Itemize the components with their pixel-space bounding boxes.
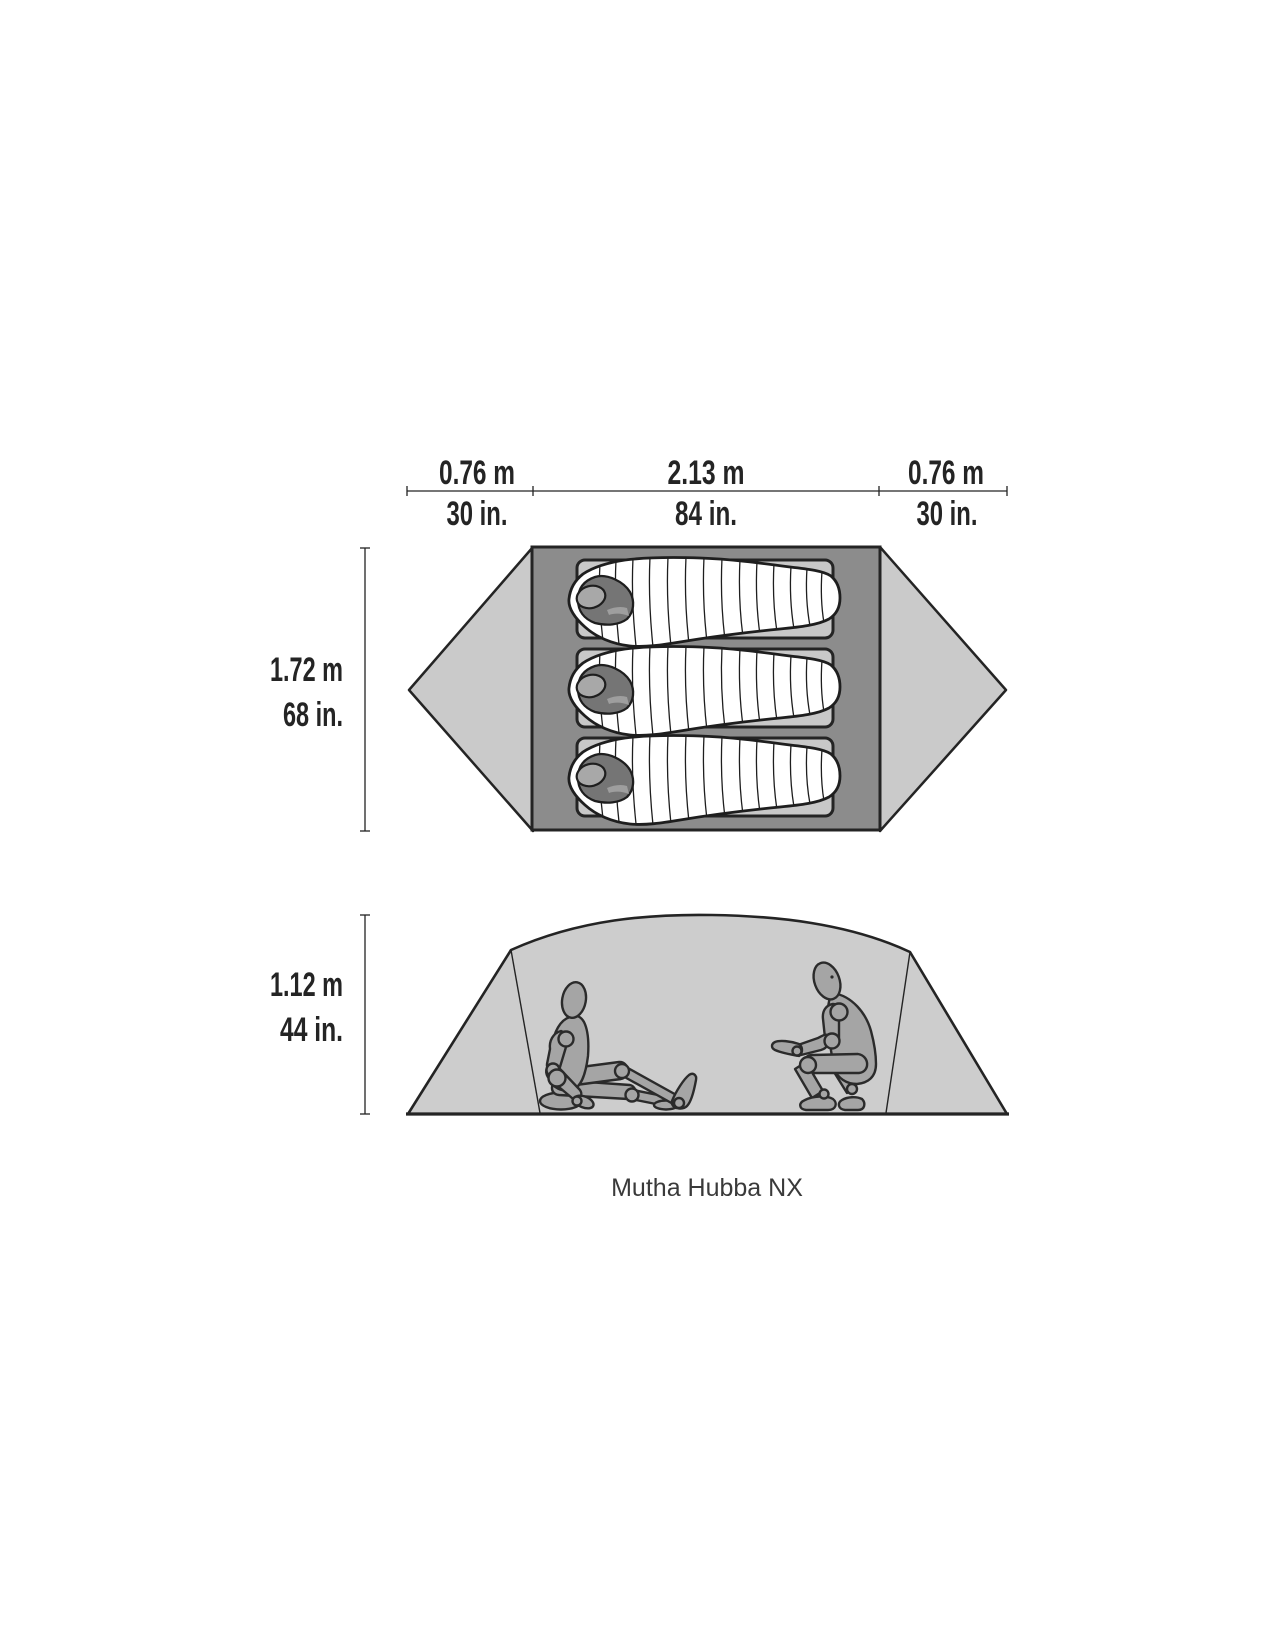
svg-text:1.12 m: 1.12 m bbox=[270, 966, 343, 1004]
svg-text:1.72 m: 1.72 m bbox=[270, 651, 343, 689]
svg-text:2.13 m: 2.13 m bbox=[668, 454, 745, 492]
svg-text:0.76 m: 0.76 m bbox=[439, 454, 515, 492]
svg-text:68 in.: 68 in. bbox=[283, 696, 343, 734]
svg-text:30 in.: 30 in. bbox=[917, 495, 978, 533]
svg-text:Mutha Hubba NX: Mutha Hubba NX bbox=[611, 1174, 803, 1202]
svg-text:44 in.: 44 in. bbox=[280, 1011, 343, 1049]
svg-text:30 in.: 30 in. bbox=[447, 495, 508, 533]
svg-text:0.76 m: 0.76 m bbox=[908, 454, 984, 492]
svg-text:84 in.: 84 in. bbox=[675, 495, 737, 533]
